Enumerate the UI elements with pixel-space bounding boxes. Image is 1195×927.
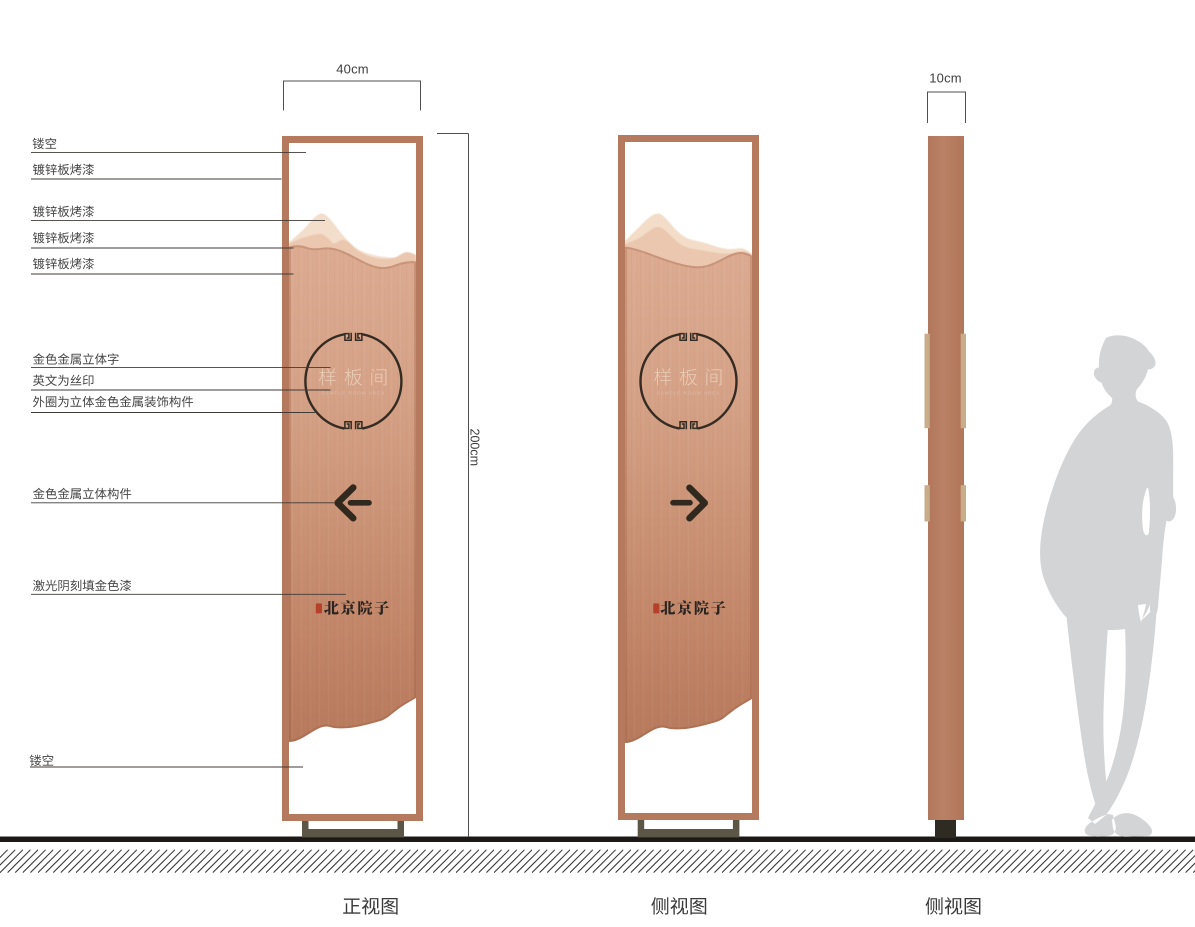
svg-text:200cm: 200cm — [468, 429, 482, 467]
svg-text:SAMPLE ROOM AREA: SAMPLE ROOM AREA — [322, 391, 386, 396]
svg-text:SAMPLE ROOM AREA: SAMPLE ROOM AREA — [657, 391, 721, 396]
svg-text:40cm: 40cm — [336, 62, 369, 77]
svg-text:10cm: 10cm — [929, 71, 962, 86]
